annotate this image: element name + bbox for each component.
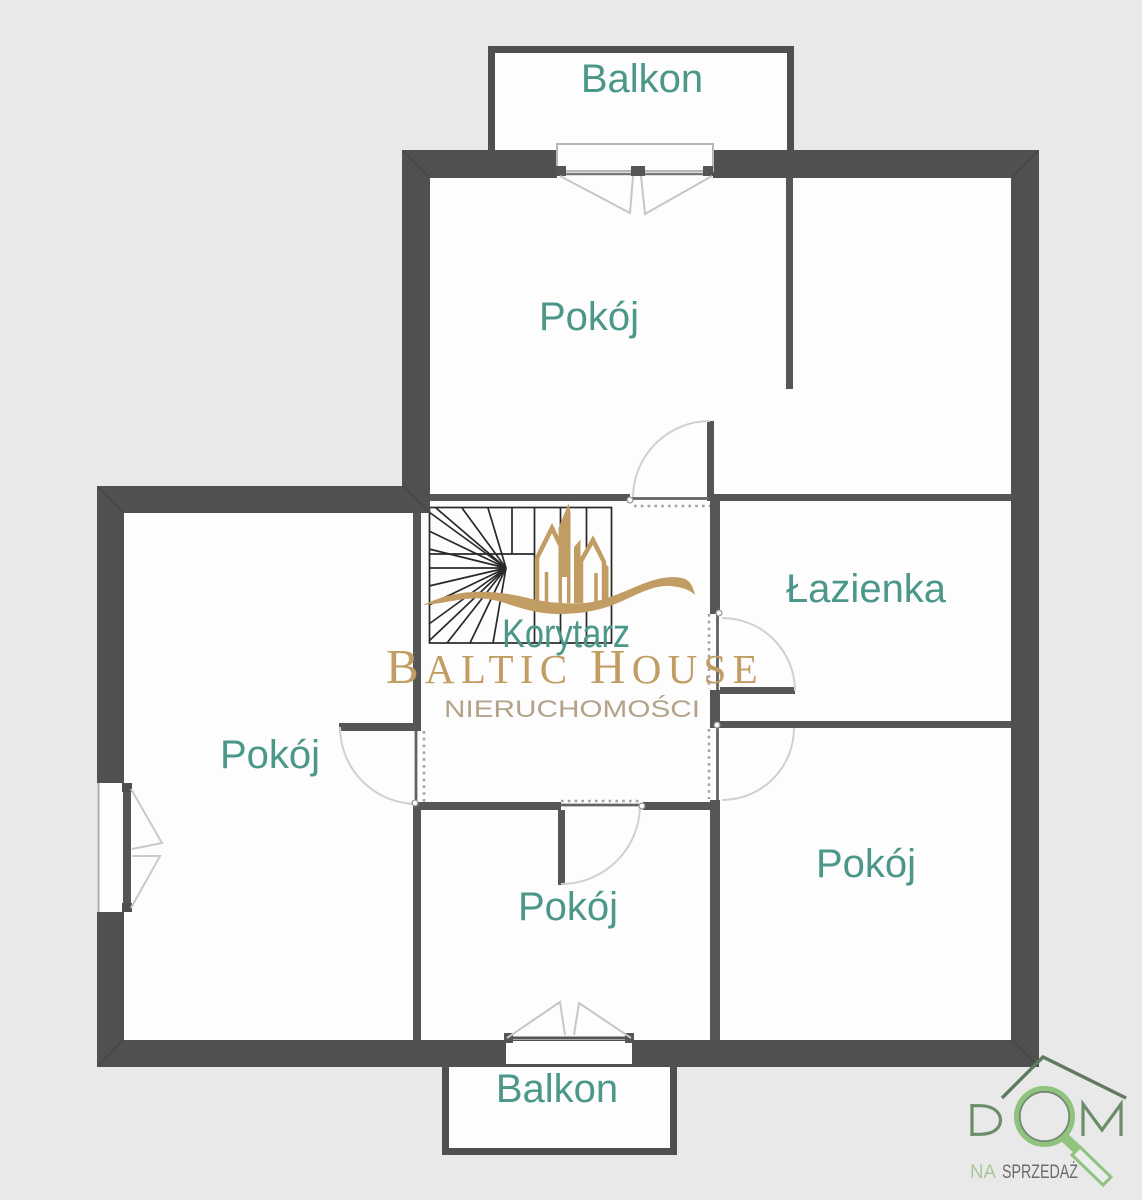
svg-text:BALTIC HOUSE: BALTIC HOUSE: [386, 639, 764, 694]
svg-text:NIERUCHOMOŚCI: NIERUCHOMOŚCI: [444, 695, 700, 723]
svg-text:Łazienka: Łazienka: [786, 567, 947, 611]
svg-text:SPRZEDAŻ: SPRZEDAŻ: [1002, 1162, 1078, 1183]
svg-text:NA: NA: [970, 1162, 996, 1183]
svg-text:Pokój: Pokój: [816, 842, 916, 886]
svg-text:Balkon: Balkon: [581, 57, 703, 101]
svg-text:Pokój: Pokój: [539, 295, 639, 339]
svg-text:Balkon: Balkon: [496, 1067, 618, 1111]
svg-text:Pokój: Pokój: [220, 733, 320, 777]
svg-text:Pokój: Pokój: [518, 885, 618, 929]
